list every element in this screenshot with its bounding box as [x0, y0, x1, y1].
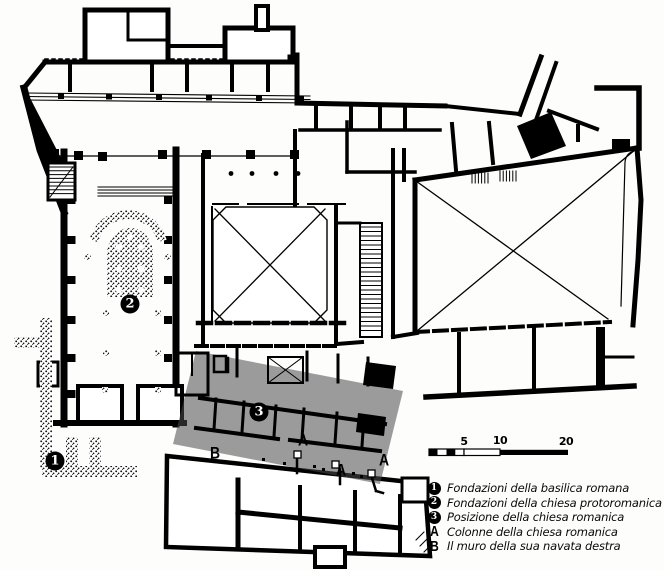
legend-item-b: B Il muro della sua navata destra — [427, 539, 662, 554]
plan-letter-a-2: A — [336, 461, 346, 481]
legend-item-a-label: Colonne della chiesa romanica — [447, 525, 618, 539]
legend-badge-2-icon: 2 — [427, 496, 441, 509]
scale-label-20: 20 — [559, 435, 573, 448]
plan-badge-3: 3 — [250, 403, 269, 422]
legend-letter-a-icon: A — [427, 525, 441, 538]
legend-letter-b-icon: B — [427, 540, 441, 553]
plan-letter-b: B — [210, 444, 220, 464]
plan-letter-a-3: A — [379, 451, 389, 471]
legend-item-2-label: Fondazioni della chiesa protoromanica — [447, 496, 662, 510]
plan-badge-2: 2 — [121, 295, 140, 314]
legend-item-3: 3 Posizione della chiesa romanica — [427, 510, 662, 525]
legend: 1 Fondazioni della basilica romana 2 Fon… — [427, 481, 662, 554]
scale-label-10: 10 — [493, 434, 507, 447]
legend-item-a: A Colonne della chiesa romanica — [427, 525, 662, 540]
legend-badge-1-icon: 1 — [427, 482, 441, 495]
legend-item-b-label: Il muro della sua navata destra — [447, 539, 620, 553]
scale-bar — [429, 449, 568, 456]
legend-item-2: 2 Fondazioni della chiesa protoromanica — [427, 496, 662, 511]
scale-label-5: 5 — [460, 435, 467, 448]
plan-letter-a-1: A — [298, 431, 308, 451]
legend-item-3-label: Posizione della chiesa romanica — [447, 510, 624, 524]
legend-badge-3-icon: 3 — [427, 511, 441, 524]
floor-plan-figure: 1 2 3 B A A A 5 10 20 1 Fondazioni della… — [0, 0, 664, 570]
legend-item-1-label: Fondazioni della basilica romana — [447, 481, 629, 495]
legend-item-1: 1 Fondazioni della basilica romana — [427, 481, 662, 496]
plan-badge-1: 1 — [46, 452, 65, 471]
